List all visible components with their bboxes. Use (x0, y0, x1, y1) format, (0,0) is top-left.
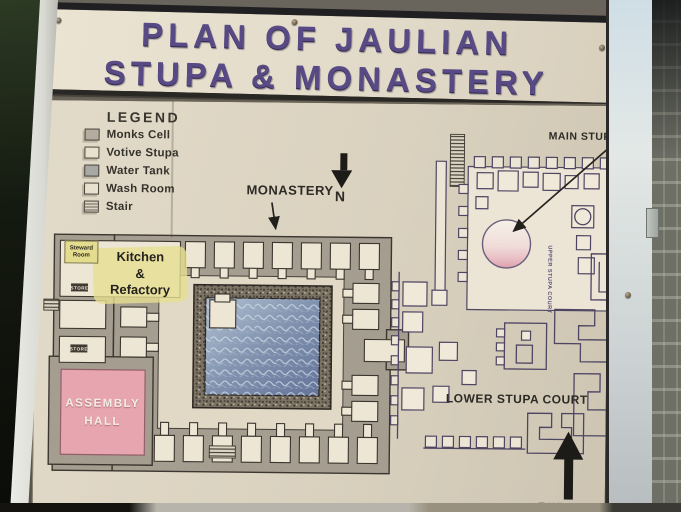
map-board: LEGEND Monks Cell Votive Stupa Water Tan… (32, 98, 612, 512)
votive-stupa-swatch (84, 146, 99, 158)
water-tank-swatch (84, 164, 99, 176)
legend-heading: LEGEND (107, 109, 225, 126)
assembly-hall-label: ASSEMBLY HALL (60, 369, 145, 455)
screw-bolt (292, 19, 298, 25)
stair-hatch (209, 446, 235, 458)
stair-hatch (44, 299, 59, 310)
photo-bottom-edge (0, 503, 681, 512)
wash-room-swatch (84, 182, 99, 194)
west-wall-bar (435, 161, 446, 294)
legend-item-stair: Stair (84, 198, 224, 216)
monastery-pointer-arrow (272, 202, 276, 228)
title-board: PLAN OF JAULIAN STUPA & MONASTERY (42, 2, 612, 108)
legend-item-votive-stupa: Votive Stupa (84, 144, 224, 162)
legend-item-wash-room: Wash Room (84, 180, 224, 198)
monks-cell-swatch (85, 128, 100, 140)
sign-photo: PLAN OF JAULIAN STUPA & MONASTERY (0, 0, 681, 512)
mounting-bracket (646, 208, 659, 238)
stair-ladder (450, 134, 465, 186)
steward-room-label: Steward Room (64, 240, 98, 263)
lower-stupa-court-label: LOWER STUPA COURT (446, 391, 588, 406)
store-room-label: STORE (70, 344, 87, 352)
sign-right-post (606, 0, 654, 512)
entrance-arrow (553, 431, 584, 499)
courtyard-water-tank (193, 285, 332, 409)
legend: LEGEND Monks Cell Votive Stupa Water Tan… (84, 109, 225, 216)
brick-wall-background (652, 0, 681, 512)
central-shrine (496, 323, 546, 370)
legend-item-monks-cell: Monks Cell (85, 126, 225, 144)
screw-bolt (625, 292, 631, 298)
store-room-label: STORE (71, 283, 88, 291)
monastery-label: MONASTERY (232, 182, 348, 198)
legend-item-water-tank: Water Tank (84, 162, 224, 180)
upper-stupa-court-label: UPPER STUPA COURT (546, 245, 553, 309)
kitchen-refactory-label: Kitchen & Refactory (91, 249, 190, 300)
north-label: N (335, 188, 345, 204)
stair-swatch (84, 200, 99, 212)
main-stupa-circle (482, 220, 531, 269)
